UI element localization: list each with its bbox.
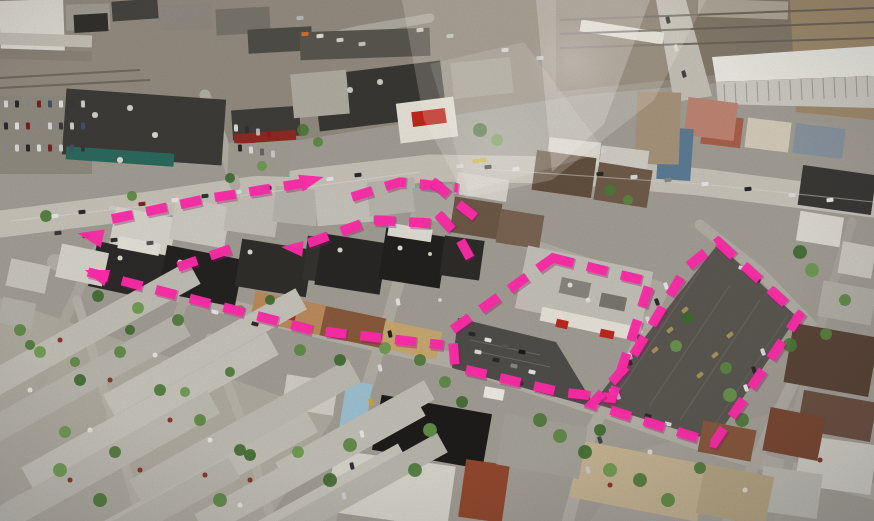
screenshot-root xyxy=(0,0,874,521)
film-grain-overlay xyxy=(0,0,874,521)
aerial-photo-svg xyxy=(0,0,874,521)
